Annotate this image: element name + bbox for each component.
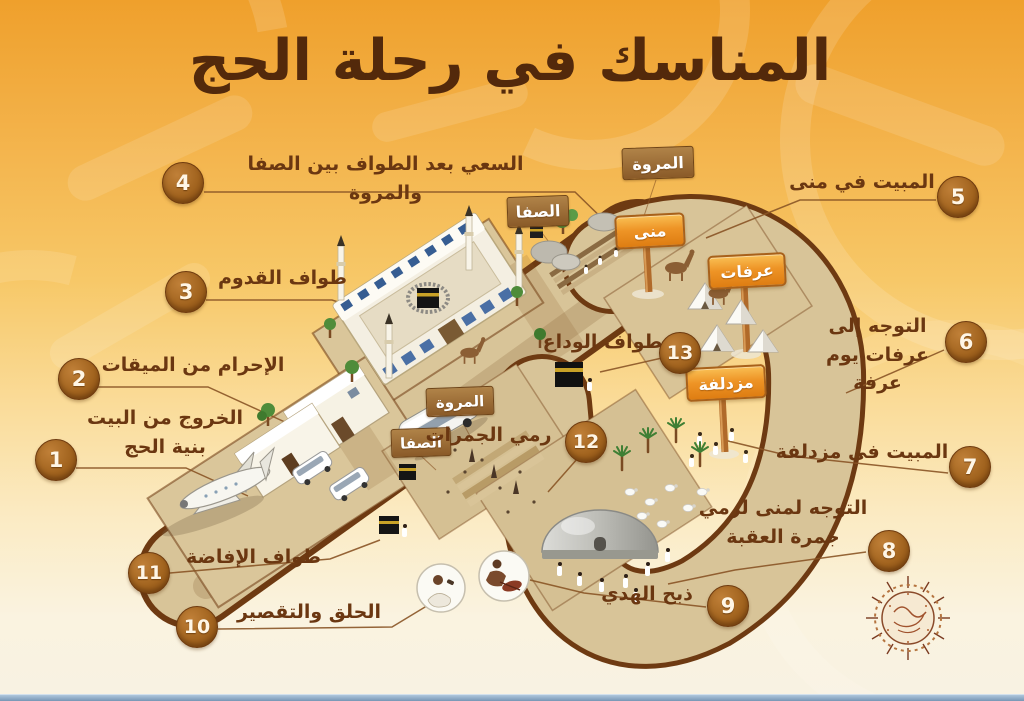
step-label-4: السعي بعد الطواف بين الصفا والمروة <box>208 150 563 207</box>
step-label-12: رمي الجمرات <box>416 421 561 450</box>
step-label-7: المبيت في مزدلفة <box>772 438 952 467</box>
step-number: 8 <box>882 539 897 563</box>
step-label-2: الإحرام من الميقات <box>98 351 288 380</box>
head-shaving-vignette <box>417 564 465 612</box>
kaaba-icon <box>379 516 407 537</box>
step-number: 6 <box>959 330 974 354</box>
step-badge-7: 7 <box>949 446 991 488</box>
plate-marwa-top: المروة <box>621 146 694 180</box>
step-label-10: الحلق والتقصير <box>224 598 394 627</box>
step-badge-5: 5 <box>937 176 979 218</box>
step-label-13: طواف الوداع <box>540 328 665 357</box>
step-badge-10: 10 <box>176 606 218 648</box>
road-sign-muzdalifah: مزدلفة <box>685 364 767 402</box>
step-badge-9: 9 <box>707 585 749 627</box>
hajj-infographic: المناسك في رحلة الحج منى عرفات مزدلفة ال… <box>0 0 1024 701</box>
step-badge-2: 2 <box>58 358 100 400</box>
step-number: 2 <box>72 367 87 391</box>
step-number: 9 <box>721 594 736 618</box>
step-number: 11 <box>136 562 162 584</box>
step-number: 1 <box>49 448 64 472</box>
step-badge-11: 11 <box>128 552 170 594</box>
step-label-8: التوجه لمنى لرمي جمرة العقبة <box>698 494 868 551</box>
road-sign-mina: منى <box>614 212 686 250</box>
step-label-1: الخروج من البيت بنية الحج <box>80 404 250 461</box>
step-number: 7 <box>963 455 978 479</box>
calligraphy-seal <box>866 576 950 660</box>
step-label-11: طواف الإفاضة <box>176 543 331 572</box>
kaaba-icon <box>399 464 416 480</box>
plate-label: المروة <box>436 392 485 412</box>
step-badge-4: 4 <box>162 162 204 204</box>
step-number: 12 <box>573 431 599 453</box>
road-sign-arafat: عرفات <box>707 252 787 290</box>
step-number: 4 <box>176 171 191 195</box>
step-label-9: ذبح الهدي <box>592 580 702 609</box>
plate-marwa-inner: المروة <box>426 386 495 417</box>
step-label-3: طواف القدوم <box>210 264 355 293</box>
step-badge-8: 8 <box>868 530 910 572</box>
step-badge-1: 1 <box>35 439 77 481</box>
bottom-border-strip <box>0 694 1024 701</box>
road-sign-label: مزدلفة <box>698 372 754 394</box>
page-title: المناسك في رحلة الحج <box>120 8 900 116</box>
step-label-6: التوجه إلى عرفات يوم عرفة <box>800 312 955 398</box>
slaughter-vignette <box>479 551 529 601</box>
step-number: 5 <box>951 185 966 209</box>
step-badge-3: 3 <box>165 271 207 313</box>
road-sign-label: منى <box>633 221 667 242</box>
step-label-5: المبيت في منى <box>782 168 942 197</box>
plate-label: المروة <box>632 153 684 174</box>
step-number: 10 <box>184 616 210 638</box>
step-number: 3 <box>179 280 194 304</box>
step-badge-12: 12 <box>565 421 607 463</box>
road-sign-label: عرفات <box>720 260 774 282</box>
step-number: 13 <box>667 342 693 364</box>
step-badge-13: 13 <box>659 332 701 374</box>
